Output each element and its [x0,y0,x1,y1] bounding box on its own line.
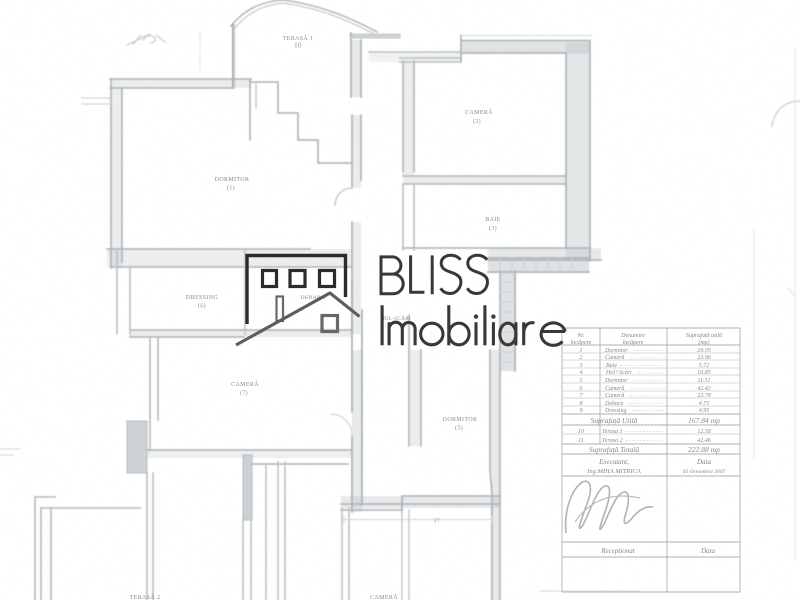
svg-text:5.72: 5.72 [699,363,710,369]
svg-text:Debara: Debara [604,401,623,407]
svg-text:Data: Data [700,547,716,555]
svg-text:DORMITOR: DORMITOR [443,417,478,423]
svg-text:Dressing: Dressing [604,408,626,414]
svg-text:10: 10 [294,42,302,50]
svg-text:Cameră: Cameră [605,355,624,361]
svg-text:Terasa 1: Terasa 1 [602,429,623,435]
svg-text:Executant,: Executant, [598,458,629,466]
svg-text:DRESSING: DRESSING [186,295,218,301]
svg-text:5: 5 [580,378,583,384]
svg-text:12.58: 12.58 [697,429,711,435]
svg-text:Suprafață Totală: Suprafață Totală [589,445,640,454]
svg-text:10.85: 10.85 [697,370,711,376]
svg-text:CAMERĂ: CAMERĂ [231,380,259,388]
svg-text:6: 6 [580,386,583,392]
svg-text:05 Octombrie 2007: 05 Octombrie 2007 [683,469,726,475]
svg-text:(mp): (mp) [698,339,709,346]
svg-text:(6): (6) [198,303,206,310]
svg-text:4.95: 4.95 [699,407,710,414]
svg-text:42.42: 42.42 [697,385,711,392]
svg-text:9: 9 [580,408,583,414]
svg-text:Hol+Scări: Hol+Scări [605,370,632,376]
svg-text:8: 8 [580,401,583,407]
svg-text:2: 2 [580,355,583,361]
svg-text:încăpere: încăpere [623,340,644,346]
svg-text:3: 3 [579,363,583,369]
svg-text:BAIE: BAIE [485,217,500,223]
svg-text:Recepționat: Recepționat [600,547,635,555]
svg-text:(2): (2) [473,118,481,125]
svg-text:4: 4 [580,369,583,376]
svg-text:Data: Data [696,458,712,466]
svg-text:167.84 mp: 167.84 mp [688,416,720,425]
svg-text:Dormitor: Dormitor [604,378,628,384]
svg-text:Terasa 2: Terasa 2 [602,438,623,444]
svg-text:1: 1 [580,348,583,354]
svg-text:11.51: 11.51 [697,378,710,384]
svg-text:(7): (7) [240,390,248,397]
svg-text:Suprafață utilă: Suprafață utilă [686,332,722,339]
svg-text:11: 11 [578,438,584,444]
svg-text:42.46: 42.46 [697,437,711,444]
svg-text:Cameră: Cameră [605,393,624,399]
svg-text:29.05: 29.05 [697,348,711,354]
svg-text:TERASĂ 2: TERASĂ 2 [130,593,161,600]
svg-text:încăpere: încăpere [571,340,592,346]
svg-text:Nr.: Nr. [576,333,584,339]
svg-text:(5): (5) [455,425,463,432]
svg-text:4.73: 4.73 [699,400,710,407]
svg-text:(3): (3) [489,225,497,232]
svg-text:Cameră: Cameră [605,386,624,392]
svg-text:Suprafață Utilă: Suprafață Utilă [591,416,638,425]
svg-text:10: 10 [578,429,584,435]
svg-text:27: 27 [434,518,440,524]
svg-text:Ing.MIHA MITRICA: Ing.MIHA MITRICA [586,468,641,475]
svg-text:Denumire: Denumire [620,333,645,339]
svg-text:222.88 mp: 222.88 mp [688,445,720,454]
svg-text:DORMITOR: DORMITOR [215,177,250,183]
svg-text:(1): (1) [227,185,235,192]
svg-text:Dormitor: Dormitor [604,348,628,354]
svg-text:23.78: 23.78 [697,393,711,399]
svg-text:CAMERĂ: CAMERĂ [465,108,493,116]
svg-text:23.96: 23.96 [697,355,711,361]
svg-text:CAMERĂ: CAMERĂ [370,593,398,600]
svg-text:Baie: Baie [606,363,617,369]
